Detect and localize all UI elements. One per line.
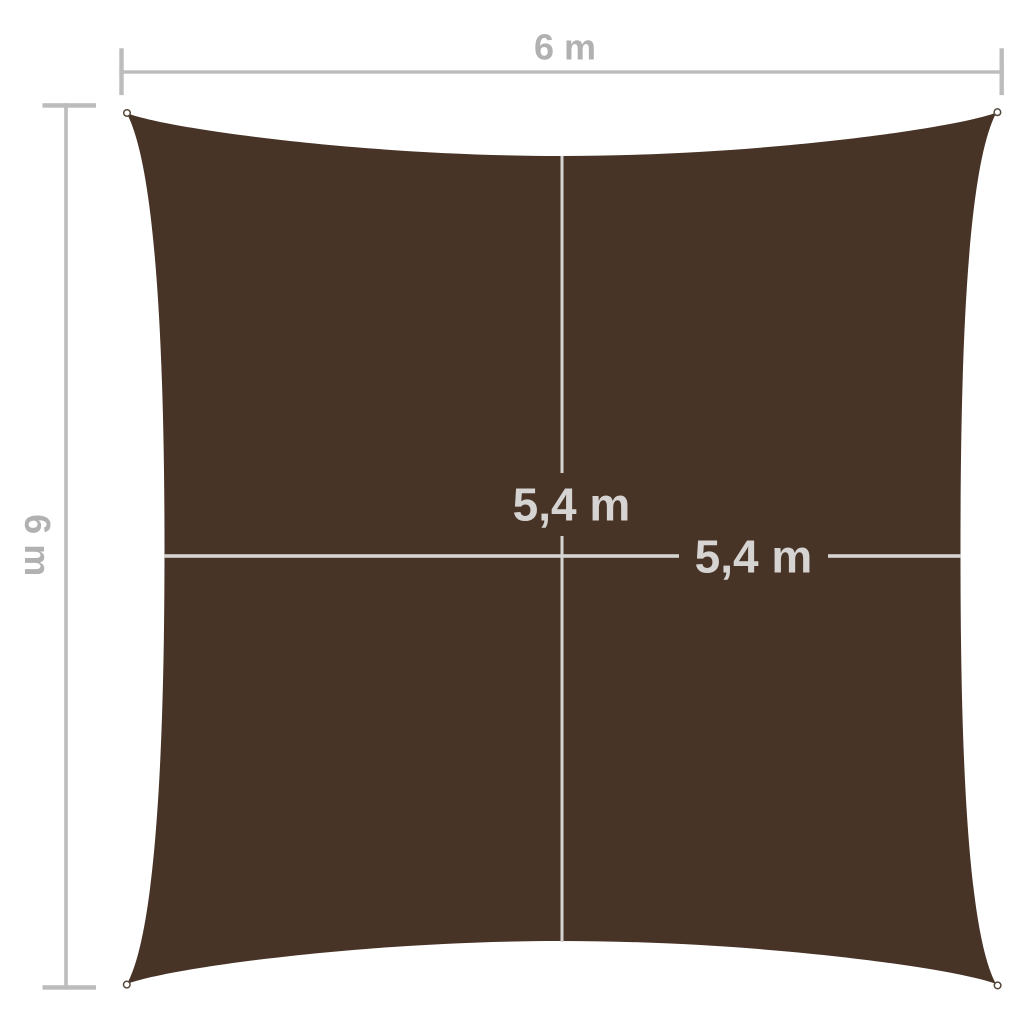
svg-text:6 m: 6 m (17, 514, 58, 576)
svg-text:6 m: 6 m (534, 27, 596, 68)
svg-text:5,4 m: 5,4 m (513, 479, 631, 531)
svg-text:5,4 m: 5,4 m (695, 531, 813, 583)
